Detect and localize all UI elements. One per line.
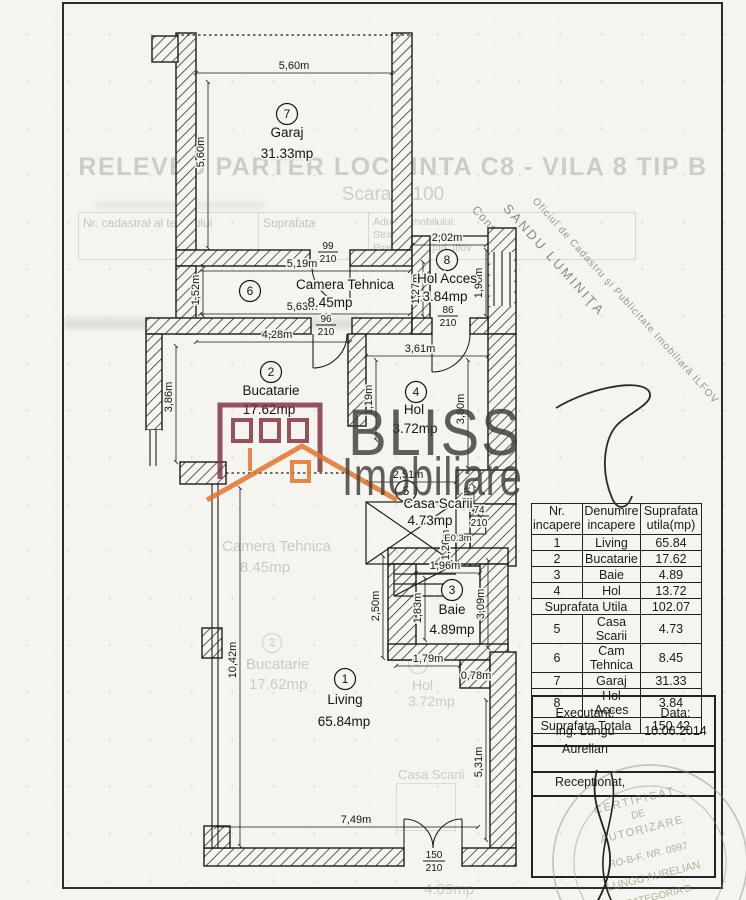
table-row: 2Bucatarie17.62 — [532, 551, 702, 567]
room-number-garaj: 7 — [284, 107, 291, 121]
door-cs-note: E0.3m — [444, 533, 472, 544]
watermark-subtitle: Imobiliare — [342, 446, 523, 508]
cell-name: Bucatarie — [582, 551, 640, 567]
door-ct-width: 96 — [320, 314, 332, 325]
dim-bucatarie-left: 3,86m — [163, 382, 175, 413]
dim-baie-left: 1,83m — [412, 593, 424, 624]
dim-baie-right: 3,09m — [475, 589, 487, 620]
table-header-nr: Nr. incapere — [532, 504, 583, 535]
scanned-floor-plan-page: RELEVEU PARTER LOCUINTA C8 - VILA 8 TIP … — [0, 0, 746, 900]
room-name-living: Living — [327, 692, 362, 707]
room-area-hol-acces: 3.84mp — [422, 289, 467, 304]
executant-row: Executant: Ing. Lungu Aurelian Data: 10.… — [533, 697, 714, 747]
cell-name: Casa Scarii — [582, 615, 640, 644]
dim-bucatarie-top: 4,28m — [262, 329, 293, 341]
room-number-camera-tehnica: 6 — [247, 284, 254, 298]
door-garaj-width: 99 — [322, 241, 334, 252]
date-value: 10.06.2014 — [637, 722, 714, 740]
dim-wall-step: 0,78m — [461, 670, 492, 682]
date-label: Data: — [637, 704, 714, 722]
subtotal-value: 102.07 — [640, 599, 701, 615]
cell-no: 2 — [532, 551, 583, 567]
door-garaj-height: 210 — [320, 254, 337, 265]
table-row: 6Cam Tehnica8.45 — [532, 644, 702, 673]
table-header-denumire: Denumire incapere — [582, 504, 640, 535]
cell-name: Hol — [582, 583, 640, 599]
cell-area: 4.89 — [640, 567, 701, 583]
room-name-camera-tehnica: Camera Tehnica — [296, 277, 395, 292]
cell-name: Living — [582, 535, 640, 551]
dim-garaj-width: 5,60m — [279, 60, 310, 72]
cell-area: 17.62 — [640, 551, 701, 567]
cell-no: 3 — [532, 567, 583, 583]
cell-no: 7 — [532, 673, 583, 689]
room-name-baie: Baie — [438, 602, 465, 617]
cell-name: Garaj — [582, 673, 640, 689]
dim-baie-outer-left: 2,50m — [370, 591, 382, 622]
cell-area: 31.33 — [640, 673, 701, 689]
door-label-hol-acces: 86 210 — [438, 305, 458, 329]
cell-area: 13.72 — [640, 583, 701, 599]
door-cs-height: 210 — [471, 518, 488, 529]
dim-ct-top: 5,19m — [287, 258, 318, 270]
door-ct-height: 210 — [318, 327, 335, 338]
cell-no: 1 — [532, 535, 583, 551]
received-row: Receptionat, — [533, 771, 714, 797]
subtotal-label: Suprafata Utila — [532, 599, 641, 615]
table-header-suprafata: Suprafata utila(mp) — [640, 504, 701, 535]
cell-name: Baie — [582, 567, 640, 583]
room-area-casa-scarii: 4.73mp — [407, 513, 452, 528]
table-subtotal-row: Suprafata Utila102.07 — [532, 599, 702, 615]
door-ha-height: 210 — [440, 318, 457, 329]
room-name-garaj: Garaj — [270, 125, 303, 140]
room-number-bucatarie: 2 — [268, 365, 275, 379]
room-area-bucatarie: 17.62mp — [243, 402, 296, 417]
received-label: Receptionat, — [555, 775, 625, 789]
cell-name: Cam Tehnica — [582, 644, 640, 673]
room-number-living: 1 — [342, 672, 349, 686]
room-number-hol-acces: 8 — [444, 253, 451, 267]
cell-no: 6 — [532, 644, 583, 673]
room-name-hol-acces: Hol Acces — [417, 271, 477, 286]
date-block: Data: 10.06.2014 — [637, 697, 714, 745]
cell-area: 65.84 — [640, 535, 701, 551]
room-area-garaj: 31.33mp — [261, 146, 314, 161]
cell-no: 4 — [532, 583, 583, 599]
dim-holacces-top: 2,02m — [432, 232, 463, 244]
table-header-row: Nr. incapere Denumire incapere Suprafata… — [532, 504, 702, 535]
executant-name: Ing. Lungu Aurelian — [533, 722, 637, 758]
dim-living-bottom: 7,49m — [341, 814, 372, 826]
table-row: 7Garaj31.33 — [532, 673, 702, 689]
executant-label: Executant: — [533, 704, 637, 722]
door-label-camera-tehnica: 96 210 — [316, 314, 336, 338]
cell-area: 8.45 — [640, 644, 701, 673]
table-row: 1Living65.84 — [532, 535, 702, 551]
room-area-baie: 4.89mp — [429, 622, 474, 637]
dim-living-left: 10,42m — [227, 642, 239, 679]
door-living-width: 150 — [426, 850, 443, 861]
door-living-height: 210 — [426, 863, 443, 874]
executant-block: Executant: Ing. Lungu Aurelian — [533, 697, 637, 745]
room-number-baie: 3 — [449, 583, 456, 597]
table-row: 3Baie4.89 — [532, 567, 702, 583]
dim-baie-bottom: 1,79m — [413, 653, 444, 665]
door-ha-width: 86 — [442, 305, 454, 316]
table-row: 4Hol13.72 — [532, 583, 702, 599]
table-row: 5Casa Scarii4.73 — [532, 615, 702, 644]
dim-hol-top: 3,61m — [405, 343, 436, 355]
room-area-camera-tehnica: 8.45mp — [307, 295, 352, 310]
cell-area: 4.73 — [640, 615, 701, 644]
cell-no: 5 — [532, 615, 583, 644]
dim-living-right: 5,31m — [473, 747, 485, 778]
room-area-living: 65.84mp — [318, 714, 371, 729]
dim-garaj-height: 5,60m — [195, 137, 207, 168]
dim-ct-left: 1,52m — [190, 275, 202, 306]
signature-box: Executant: Ing. Lungu Aurelian Data: 10.… — [531, 695, 716, 878]
room-name-bucatarie: Bucatarie — [242, 383, 299, 398]
door-label-garaj: 99 210 — [318, 241, 338, 265]
dim-baie-top: 1,96m — [430, 560, 461, 572]
